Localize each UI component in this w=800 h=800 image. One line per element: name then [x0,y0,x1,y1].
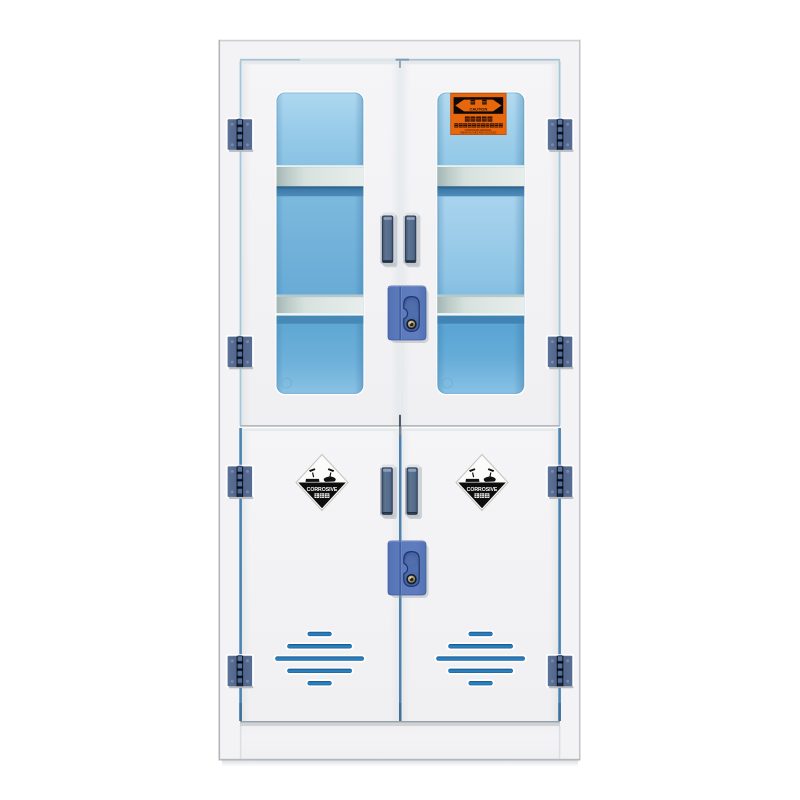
svg-text:WEAR GLOVES AND GOGGLES: WEAR GLOVES AND GOGGLES [460,132,496,135]
svg-text:CAUTION: CAUTION [470,107,488,112]
